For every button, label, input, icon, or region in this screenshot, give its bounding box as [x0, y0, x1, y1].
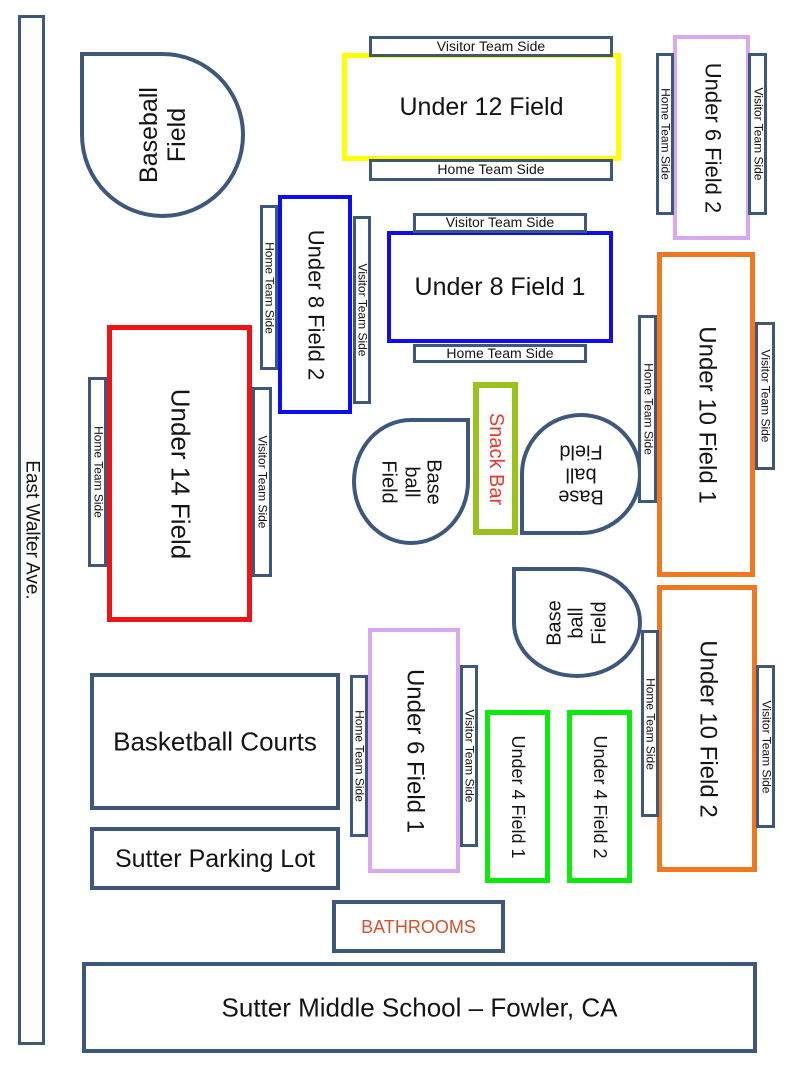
under-10-2-visitor-strip-label: Visitor Team Side: [759, 700, 772, 793]
bathrooms: BATHROOMS: [332, 900, 505, 953]
field-under-14: Under 14 Field: [107, 325, 252, 622]
under-6-1-visitor-strip: Visitor Team Side: [460, 665, 478, 847]
under-12-home-strip-label: Home Team Side: [437, 162, 544, 178]
under-12-visitor-strip-label: Visitor Team Side: [437, 39, 545, 55]
under-6-1-home-strip: Home Team Side: [350, 675, 368, 837]
under-12-visitor-strip: Visitor Team Side: [369, 36, 613, 57]
under-8-2-home-strip: Home Team Side: [260, 205, 278, 370]
under-12-home-strip: Home Team Side: [369, 159, 613, 181]
under-14-visitor-strip: Visitor Team Side: [252, 387, 272, 577]
field-under-6-2: Under 6 Field 2: [673, 35, 750, 240]
under-10-2-home-strip: Home Team Side: [641, 630, 659, 817]
under-8-1-visitor-strip: Visitor Team Side: [413, 213, 587, 233]
basketball-courts-label: Basketball Courts: [113, 727, 317, 756]
under-6-2-visitor-strip-label: Visitor Team Side: [751, 88, 764, 181]
field-under-10-1-label: Under 10 Field 1: [693, 326, 720, 503]
basketball-courts: Basketball Courts: [90, 673, 340, 810]
field-under-10-1: Under 10 Field 1: [657, 252, 755, 577]
under-8-2-visitor-strip: Visitor Team Side: [353, 216, 371, 404]
under-8-2-visitor-strip-label: Visitor Team Side: [355, 264, 368, 357]
under-10-2-visitor-strip: Visitor Team Side: [756, 665, 775, 828]
field-under-8-2: Under 8 Field 2: [278, 195, 352, 414]
field-under-6-1-label: Under 6 Field 1: [401, 668, 428, 832]
school-title-box: Sutter Middle School – Fowler, CA: [82, 962, 757, 1053]
field-under-6-2-label: Under 6 Field 2: [699, 62, 724, 212]
sutter-parking-lot-label: Sutter Parking Lot: [115, 845, 315, 873]
field-under-4-1: Under 4 Field 1: [485, 710, 550, 883]
baseball-field-south-center-label: Base ball Field: [543, 600, 610, 646]
field-map-canvas: East Walter Ave. Baseball Field Visitor …: [0, 0, 810, 1080]
field-under-10-2: Under 10 Field 2: [657, 585, 757, 872]
field-under-8-1-label: Under 8 Field 1: [415, 273, 586, 301]
baseball-field-northwest: Baseball Field: [80, 52, 245, 218]
under-8-1-home-strip: Home Team Side: [413, 344, 587, 363]
under-14-home-strip: Home Team Side: [88, 377, 107, 567]
under-6-1-home-strip-label: Home Team Side: [352, 710, 365, 802]
field-under-12-label: Under 12 Field: [400, 93, 564, 121]
under-6-1-visitor-strip-label: Visitor Team Side: [462, 710, 475, 803]
under-6-2-home-strip: Home Team Side: [656, 53, 674, 215]
field-under-14-label: Under 14 Field: [165, 388, 194, 559]
baseball-field-center-west: Base ball Field: [352, 418, 470, 545]
baseball-field-center-east-label: Base ball Field: [558, 440, 604, 507]
baseball-field-northwest-label: Baseball Field: [135, 87, 191, 183]
field-under-12: Under 12 Field: [342, 53, 621, 161]
under-6-2-home-strip-label: Home Team Side: [658, 88, 671, 180]
snack-bar-label: Snack Bar: [484, 412, 506, 504]
under-10-1-home-strip: Home Team Side: [638, 315, 657, 503]
sutter-parking-lot: Sutter Parking Lot: [90, 827, 340, 890]
under-8-1-visitor-strip-label: Visitor Team Side: [446, 215, 554, 231]
under-14-visitor-strip-label: Visitor Team Side: [255, 436, 268, 529]
baseball-field-south-center: Base ball Field: [512, 567, 642, 678]
under-8-2-home-strip-label: Home Team Side: [262, 242, 275, 334]
field-under-6-1: Under 6 Field 1: [368, 628, 460, 873]
under-10-1-visitor-strip-label: Visitor Team Side: [758, 350, 771, 443]
under-10-2-home-strip-label: Home Team Side: [643, 678, 656, 770]
under-10-1-visitor-strip: Visitor Team Side: [755, 322, 775, 470]
school-title-label: Sutter Middle School – Fowler, CA: [222, 993, 618, 1022]
under-14-home-strip-label: Home Team Side: [91, 426, 104, 518]
field-under-8-2-label: Under 8 Field 2: [303, 229, 328, 379]
field-under-4-2: Under 4 Field 2: [567, 710, 632, 883]
field-under-10-2-label: Under 10 Field 2: [694, 640, 721, 817]
snack-bar: Snack Bar: [473, 382, 518, 535]
field-under-4-2-label: Under 4 Field 2: [589, 735, 609, 858]
under-10-1-home-strip-label: Home Team Side: [641, 363, 654, 455]
street-east-walter-ave-label: East Walter Ave.: [21, 460, 42, 599]
baseball-field-center-west-label: Base ball Field: [377, 459, 444, 505]
under-6-2-visitor-strip: Visitor Team Side: [748, 53, 767, 215]
field-under-4-1-label: Under 4 Field 1: [507, 735, 527, 858]
under-8-1-home-strip-label: Home Team Side: [446, 346, 553, 362]
street-east-walter-ave: East Walter Ave.: [18, 15, 45, 1045]
bathrooms-label: BATHROOMS: [361, 916, 476, 936]
baseball-field-center-east: Base ball Field: [520, 413, 642, 535]
field-under-8-1: Under 8 Field 1: [387, 231, 613, 343]
